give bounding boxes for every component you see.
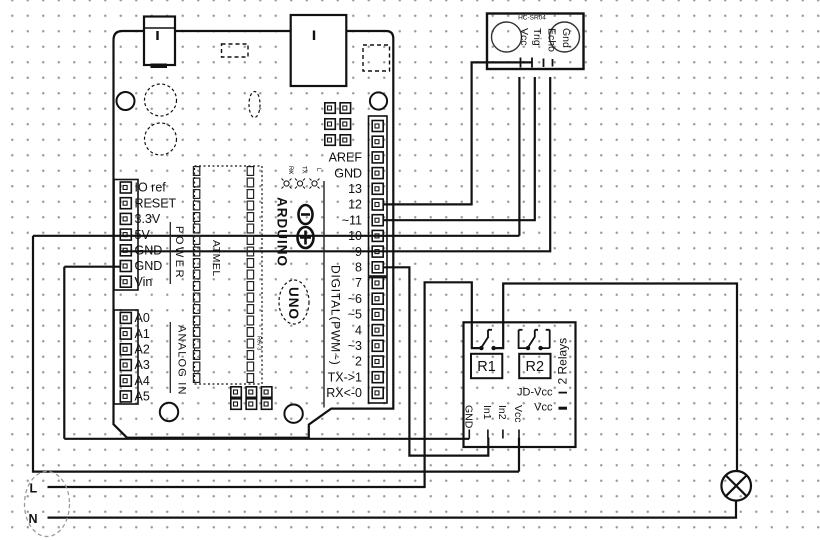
svg-text:L: L [30, 482, 38, 496]
svg-text:POWER: POWER [173, 226, 185, 280]
svg-text:2: 2 [355, 355, 362, 369]
svg-text:ANALOG IN: ANALOG IN [176, 325, 188, 396]
svg-text:HC-SR04: HC-SR04 [518, 15, 546, 22]
svg-text:In1: In1 [481, 405, 493, 420]
svg-text:12: 12 [348, 198, 362, 212]
svg-text:Rev 3: Rev 3 [256, 336, 262, 350]
svg-text:~10: ~10 [341, 229, 362, 243]
svg-text:Vin: Vin [135, 275, 153, 289]
svg-text:8: 8 [355, 261, 362, 275]
svg-text:A3: A3 [135, 358, 150, 372]
svg-text:~3: ~3 [348, 339, 362, 353]
svg-text:~9: ~9 [348, 245, 362, 259]
svg-text:GND: GND [135, 259, 163, 273]
svg-text:L: L [315, 168, 321, 172]
svg-text:A4: A4 [135, 374, 150, 388]
svg-text:Vcc: Vcc [512, 405, 524, 423]
svg-text:A1: A1 [135, 327, 150, 341]
svg-text:N: N [29, 512, 38, 526]
svg-text:ARDUINO: ARDUINO [275, 197, 290, 267]
svg-text:RESET: RESET [135, 196, 177, 210]
svg-text:3.3V: 3.3V [135, 212, 161, 226]
svg-text:TX->1: TX->1 [328, 370, 362, 384]
svg-text:13: 13 [348, 182, 362, 196]
svg-text:A5: A5 [135, 390, 150, 404]
svg-text:AREF: AREF [329, 151, 363, 165]
svg-text:TX: TX [301, 166, 307, 174]
svg-text:In2: In2 [496, 405, 508, 420]
svg-text:GND: GND [135, 244, 163, 258]
svg-text:ATMEL: ATMEL [210, 240, 222, 277]
svg-text:RX: RX [287, 166, 293, 174]
svg-text:5V: 5V [135, 228, 151, 242]
svg-text:~11: ~11 [342, 213, 362, 227]
svg-text:7: 7 [355, 276, 362, 290]
svg-text:A2: A2 [135, 343, 150, 357]
svg-text:R2: R2 [526, 359, 545, 375]
svg-text:JD-Vcc: JD-Vcc [517, 387, 553, 399]
svg-text:GND: GND [462, 405, 474, 429]
svg-text:GND: GND [334, 166, 362, 180]
svg-text:~6: ~6 [348, 292, 362, 306]
svg-text:UNO: UNO [286, 287, 301, 320]
svg-text:Vcc: Vcc [518, 28, 530, 46]
svg-text:RX<-0: RX<-0 [326, 386, 362, 400]
svg-text:Echo: Echo [546, 28, 558, 52]
svg-text:Vcc: Vcc [534, 401, 553, 413]
svg-text:~5: ~5 [348, 308, 362, 322]
svg-text:Gnd: Gnd [560, 28, 572, 48]
svg-text:2 Relays: 2 Relays [556, 338, 570, 385]
svg-text:A0: A0 [135, 311, 150, 325]
svg-text:4: 4 [355, 323, 362, 337]
svg-text:DIGITAL(PWM~): DIGITAL(PWM~) [329, 265, 343, 366]
svg-text:R1: R1 [477, 359, 496, 375]
svg-text:IO ref: IO ref [135, 181, 167, 195]
svg-text:Trig: Trig [531, 28, 543, 46]
